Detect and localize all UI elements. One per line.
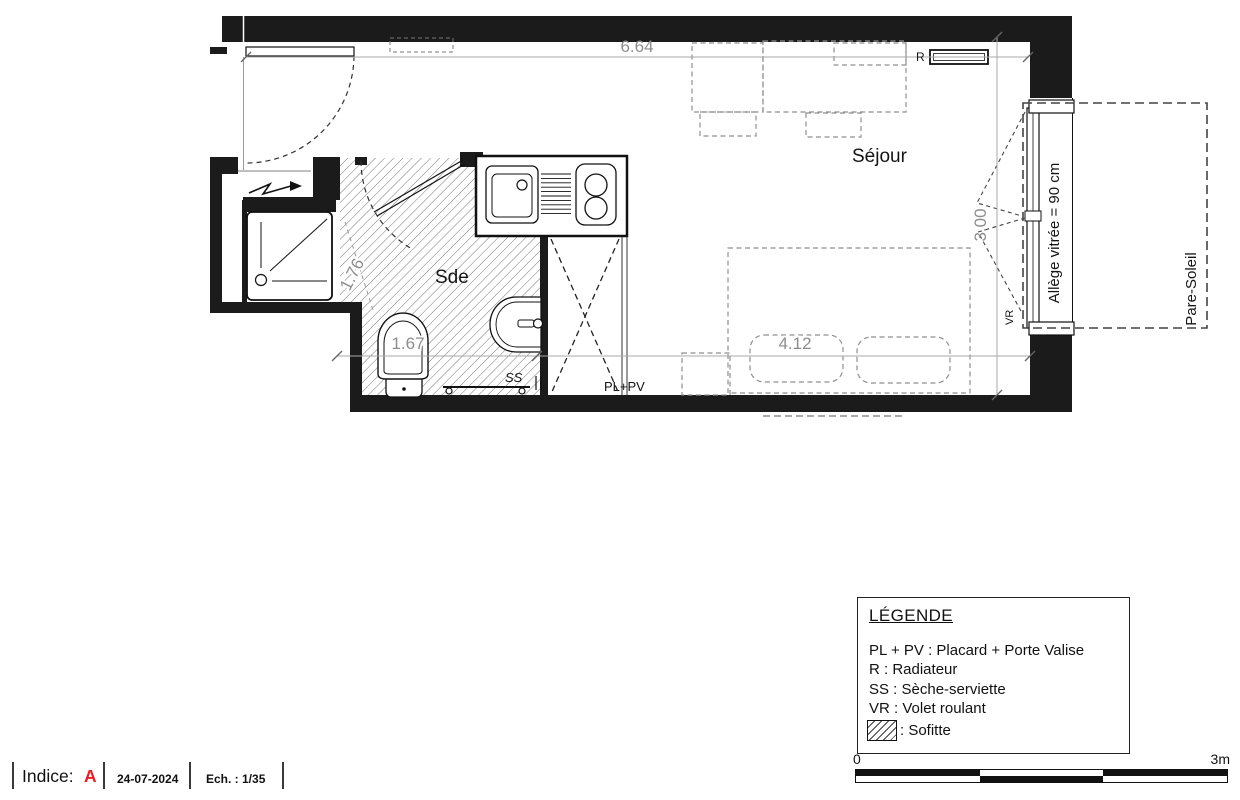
legend-hatch-row: : Sofitte (867, 720, 1129, 741)
shower-tray (247, 212, 332, 300)
table-left (692, 43, 763, 112)
divider (103, 762, 105, 789)
legend-hatch-label: : Sofitte (900, 722, 951, 739)
legend-entries: PL + PV : Placard + Porte Valise R : Rad… (869, 641, 1129, 719)
legend-entry: SS : Sèche-serviette (869, 680, 1129, 699)
chair (700, 112, 756, 136)
dim-room-depth: 3.00 (971, 208, 990, 241)
towel-dryer-label: SS (505, 370, 523, 385)
legend-entry: VR : Volet roulant (869, 699, 1129, 718)
kitchenette (476, 156, 627, 236)
chair (806, 113, 861, 137)
sun-shade-label: Pare-Soleil (1183, 252, 1200, 325)
dim-sde-width: 1.67 (391, 334, 424, 353)
chair (834, 43, 906, 65)
room-label-sejour: Séjour (852, 146, 908, 167)
legend-entry: R : Radiateur (869, 660, 1129, 679)
legend-box: LÉGENDE PL + PV : Placard + Porte Valise… (857, 597, 1130, 754)
floor-plan-sheet: 6.64 3.00 1.67 4.12 1.76 Séjour Sde R SS… (0, 0, 1240, 800)
walls (210, 16, 1072, 412)
entrance-door-leaf (246, 47, 354, 56)
indice-value: A (84, 766, 97, 787)
legend-title: LÉGENDE (869, 606, 1129, 626)
closet-label: PL+PV (604, 379, 645, 394)
room-label-sde: Sde (435, 267, 469, 288)
legend-entry: PL + PV : Placard + Porte Valise (869, 641, 1129, 660)
divider (282, 762, 284, 789)
roller-shutter-label: VR (1004, 310, 1016, 325)
entrance-arrow-icon (249, 184, 291, 194)
casement-swing-top (977, 112, 1025, 216)
scale-bar: 0 3m (855, 751, 1228, 785)
entrance-door-arc (246, 56, 354, 163)
pillow (857, 337, 950, 383)
glazing-sill-label: Allège vitrée = 90 cm (1046, 163, 1063, 304)
nightstand (682, 353, 730, 395)
revision-date: 24-07-2024 (117, 772, 178, 786)
indice-label: Indice: (22, 766, 74, 787)
drawing-scale: Ech. : 1/35 (206, 772, 265, 786)
scale-bar-graphic (855, 769, 1228, 783)
radiator-label: R (916, 50, 925, 64)
furniture (682, 41, 970, 395)
scale-start-label: 0 (853, 751, 861, 767)
scale-end-label: 3m (1211, 751, 1230, 767)
dim-bed-zone: 4.12 (778, 334, 811, 353)
dim-total-width: 6.64 (620, 37, 653, 56)
floor-plan: 6.64 3.00 1.67 4.12 1.76 Séjour Sde R SS… (0, 0, 1240, 560)
washbasin (490, 297, 542, 352)
hatch-swatch-icon (867, 720, 897, 741)
divider (12, 762, 14, 789)
toilet (378, 313, 428, 397)
divider (189, 762, 191, 789)
bed (728, 248, 970, 393)
